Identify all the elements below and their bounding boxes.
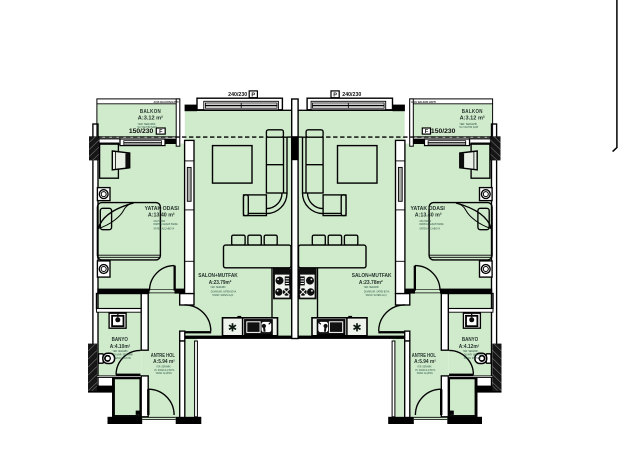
svg-text:P: P (251, 93, 255, 99)
svg-text:150/230: 150/230 (431, 129, 456, 135)
svg-text:AÇIK BALKON HATTI: AÇIK BALKON HATTI (411, 100, 436, 104)
svg-text:A:5.94 m²: A:5.94 m² (414, 359, 436, 365)
svg-text:DUVARLAR: SATEN BOYA: DUVARLAR: SATEN BOYA (211, 289, 237, 293)
svg-text:TAVAN: ALÇIPAN: TAVAN: ALÇIPAN (156, 371, 172, 375)
svg-text:SALON+MUTFAK: SALON+MUTFAK (198, 273, 238, 279)
svg-text:YATAK ODASI: YATAK ODASI (411, 206, 446, 212)
svg-text:SALON+MUTFAK: SALON+MUTFAK (352, 273, 392, 279)
svg-text:TAVAN: ALÇIPAN: TAVAN: ALÇIPAN (417, 371, 433, 375)
svg-text:A:3.12 m²: A:3.12 m² (138, 116, 163, 122)
svg-text:SATEN ALÇI+BOYA: SATEN ALÇI+BOYA (154, 226, 175, 230)
svg-text:SATEN ALÇI+BOYA: SATEN ALÇI+BOYA (419, 226, 440, 230)
svg-text:TAVAN: SATEN ALÇI: TAVAN: SATEN ALÇI (365, 293, 386, 297)
svg-text:A:13.40 m²: A:13.40 m² (415, 213, 442, 219)
svg-text:F: F (425, 129, 429, 135)
svg-text:150/230: 150/230 (129, 129, 154, 135)
svg-text:ANTRE HOL: ANTRE HOL (151, 353, 175, 359)
svg-text:P: P (333, 93, 337, 99)
svg-text:TAVAN: SATEN ALÇI: TAVAN: SATEN ALÇI (212, 293, 233, 297)
svg-text:A:5.94 m²: A:5.94 m² (153, 359, 175, 365)
svg-text:A:3.12 m²: A:3.12 m² (460, 116, 485, 122)
svg-text:AÇIK BALKON HATTI: AÇIK BALKON HATTI (154, 100, 179, 104)
svg-text:SU YALITIM ŞAPI: SU YALITIM ŞAPI (459, 125, 478, 129)
svg-text:240/230: 240/230 (342, 92, 361, 98)
svg-text:A:13.40 m²: A:13.40 m² (148, 213, 175, 219)
svg-text:A:23.79m²: A:23.79m² (209, 280, 232, 286)
svg-text:BALKON: BALKON (140, 109, 161, 115)
svg-text:BANYO: BANYO (112, 337, 128, 343)
svg-text:240/230: 240/230 (228, 92, 247, 98)
svg-text:RABITALI AHŞAP PARKE: RABITALI AHŞAP PARKE (419, 222, 443, 226)
svg-text:RABITALI AHŞAP PARKE: RABITALI AHŞAP PARKE (154, 222, 178, 226)
svg-text:A:23.78m²: A:23.78m² (359, 280, 383, 286)
svg-text:YATAK ODASI: YATAK ODASI (145, 206, 180, 212)
svg-text:BANYO: BANYO (462, 337, 478, 343)
svg-text:ANTRE HOL: ANTRE HOL (412, 353, 436, 359)
svg-text:DUVARLAR: SATEN BOYA: DUVARLAR: SATEN BOYA (364, 289, 390, 293)
svg-text:F: F (159, 129, 163, 135)
svg-text:BALKON: BALKON (462, 109, 483, 115)
